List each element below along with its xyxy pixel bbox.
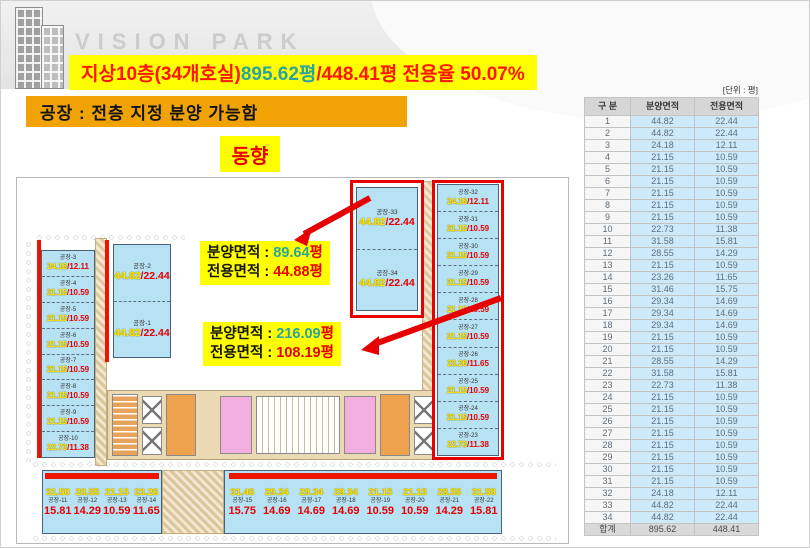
table-cell: 10.59 (695, 212, 759, 224)
unit-cell: 공장-3344.82/22.44 (357, 188, 417, 249)
restroom-right (344, 396, 376, 454)
unit-group-bottom-left: 31.58공장-1115.8128.55공장-1214.2921.15공장-13… (42, 470, 162, 534)
scallop-trim-left (24, 240, 33, 462)
elevator-icon (414, 427, 434, 455)
table-cell: 10.59 (695, 200, 759, 212)
table-cell: 10.59 (695, 476, 759, 488)
unit-cell: 공장-3121.15/10.59 (438, 211, 498, 238)
table-cell: 16 (585, 296, 631, 308)
table-cell: 12.11 (695, 140, 759, 152)
unit-cell: 공장-2421.15/10.59 (438, 401, 498, 428)
table-cell: 10.59 (695, 332, 759, 344)
table-cell: 44.82 (631, 500, 695, 512)
table-cell: 10.59 (695, 344, 759, 356)
table-cell: 21.15 (631, 428, 695, 440)
floor-plan: 공장-324.18/12.11공장-421.15/10.59공장-521.15/… (16, 177, 569, 544)
table-cell: 21.15 (631, 404, 695, 416)
table-row: 1629.3414.69 (585, 296, 759, 308)
table-cell: 14.29 (695, 356, 759, 368)
table-row: 1531.4615.75 (585, 284, 759, 296)
table-cell: 22.73 (631, 380, 695, 392)
table-row: 1423.2611.65 (585, 272, 759, 284)
table-row: 921.1510.59 (585, 212, 759, 224)
table-cell: 29.34 (631, 296, 695, 308)
table-header-cell: 구 분 (585, 98, 631, 116)
unit-cell: 공장-621.15/10.59 (42, 328, 94, 354)
table-cell: 31 (585, 476, 631, 488)
table-cell: 14.69 (695, 308, 759, 320)
table-cell: 2 (585, 128, 631, 140)
table-cell: 21.15 (631, 164, 695, 176)
unit-group-left-wing: 공장-324.18/12.11공장-421.15/10.59공장-521.15/… (41, 250, 95, 458)
table-cell: 10.59 (695, 260, 759, 272)
table-cell: 24 (585, 392, 631, 404)
table-cell: 22.73 (631, 224, 695, 236)
table-row: 244.8222.44 (585, 128, 759, 140)
table-row: 324.1812.11 (585, 140, 759, 152)
table-cell: 34 (585, 512, 631, 524)
table-cell: 21.15 (631, 152, 695, 164)
table-cell: 4 (585, 152, 631, 164)
unit-cell: 23.26공장-1411.65 (132, 471, 162, 533)
elevator-icon (142, 396, 162, 424)
table-cell: 10.59 (695, 404, 759, 416)
table-cell: 15.81 (695, 236, 759, 248)
table-cell: 10.59 (695, 176, 759, 188)
table-row: 1729.3414.69 (585, 308, 759, 320)
table-cell: 14.69 (695, 320, 759, 332)
table-cell: 21.15 (631, 452, 695, 464)
table-cell: 22.44 (695, 116, 759, 128)
table-row: 2621.1510.59 (585, 416, 759, 428)
table-cell: 10.59 (695, 428, 759, 440)
table-cell: 44.82 (631, 128, 695, 140)
table-cell: 14.29 (695, 248, 759, 260)
table-cell: 11.38 (695, 224, 759, 236)
unit-cell: 29.34공장-1814.69 (329, 471, 364, 533)
table-row: 421.1510.59 (585, 152, 759, 164)
table-cell: 44.82 (631, 512, 695, 524)
table-cell: 14.69 (695, 296, 759, 308)
table-cell: 24.18 (631, 140, 695, 152)
table-cell: 10.59 (695, 416, 759, 428)
unit-cell: 28.55공장-1214.29 (73, 471, 103, 533)
table-cell: 15.81 (695, 368, 759, 380)
table-cell: 10.59 (695, 188, 759, 200)
table-cell: 12 (585, 248, 631, 260)
callout-top-block: 분양면적 : 89.64평 전용면적 : 44.88평 (200, 241, 330, 285)
table-cell: 11 (585, 236, 631, 248)
unit-cell: 공장-2623.26/11.65 (438, 347, 498, 374)
title-banner: 지상10층(34개호실) 895.62평 /448.41평 전용율 50.07% (69, 55, 537, 90)
unit-cell: 31.46공장-1515.75 (225, 471, 260, 533)
table-cell: 19 (585, 332, 631, 344)
table-cell: 31.58 (631, 236, 695, 248)
table-row: 3344.8222.44 (585, 500, 759, 512)
table-row: 144.8222.44 (585, 116, 759, 128)
table-cell: 9 (585, 212, 631, 224)
table-row: 2128.5514.29 (585, 356, 759, 368)
unit-cell: 21.15공장-1910.59 (363, 471, 398, 533)
unit-cell: 공장-1022.73/11.38 (42, 431, 94, 457)
table-cell: 22.44 (695, 500, 759, 512)
unit-group-inner-block: 공장-244.82/22.44공장-144.82/22.44 (113, 244, 171, 358)
unit-cell: 공장-3021.15/10.59 (438, 238, 498, 265)
table-cell: 20 (585, 344, 631, 356)
table-cell: 10.59 (695, 440, 759, 452)
table-cell: 33 (585, 500, 631, 512)
table-cell: 22.44 (695, 512, 759, 524)
table-cell: 21.15 (631, 416, 695, 428)
unit-cell: 공장-324.18/12.11 (42, 251, 94, 276)
unit-cell: 공장-244.82/22.44 (114, 245, 170, 301)
logo-text: VISION PARK (75, 29, 304, 55)
table-cell: 30 (585, 464, 631, 476)
table-cell: 29 (585, 452, 631, 464)
table-cell: 21.15 (631, 476, 695, 488)
table-row: 2021.1510.59 (585, 344, 759, 356)
corridor-bottom-gap (162, 470, 224, 534)
table-cell: 895.62 (631, 524, 695, 536)
area-table-body: 144.8222.44244.8222.44324.1812.11421.151… (585, 116, 759, 536)
unit-cell: 공장-144.82/22.44 (114, 301, 170, 358)
scallop-trim-bottom (31, 534, 556, 543)
table-cell: 12.11 (695, 488, 759, 500)
unit-group-bottom-right: 31.46공장-1515.7529.34공장-1614.6929.34공장-17… (224, 470, 502, 534)
table-cell: 28.55 (631, 356, 695, 368)
unit-cell: 공장-2521.15/10.59 (438, 374, 498, 401)
table-cell: 17 (585, 308, 631, 320)
table-cell: 합계 (585, 524, 631, 536)
subtitle-banner: 공장 : 전층 지정 분양 가능함 (26, 96, 407, 127)
building-icon-small (41, 25, 64, 89)
table-cell: 28 (585, 440, 631, 452)
unit-cell: 공장-921.15/10.59 (42, 405, 94, 431)
table-cell: 10.59 (695, 452, 759, 464)
unit-cell: 공장-2821.15/10.59 (438, 292, 498, 319)
table-cell: 44.82 (631, 116, 695, 128)
table-cell: 21.15 (631, 440, 695, 452)
elevator-icon (142, 427, 162, 455)
unit-cell: 21.15공장-1310.59 (102, 471, 132, 533)
table-row: 2322.7311.38 (585, 380, 759, 392)
table-row: 2721.1510.59 (585, 428, 759, 440)
table-header-cell: 전용면적 (695, 98, 759, 116)
scallop-trim-mid (31, 460, 556, 469)
area-table: 구 분분양면적전용면적 144.8222.44244.8222.44324.18… (584, 97, 759, 536)
table-cell: 15 (585, 284, 631, 296)
unit-cell: 공장-721.15/10.59 (42, 354, 94, 380)
table-cell: 10 (585, 224, 631, 236)
unit-cell: 공장-2721.15/10.59 (438, 319, 498, 346)
table-row: 1228.5514.29 (585, 248, 759, 260)
table-row: 1829.3414.69 (585, 320, 759, 332)
table-cell: 6 (585, 176, 631, 188)
table-cell: 21.15 (631, 344, 695, 356)
building-icon (15, 7, 43, 89)
table-cell: 31.58 (631, 368, 695, 380)
highlight-wall-inner (105, 240, 109, 362)
unit-group-top-block: 공장-3344.82/22.44공장-3444.82/22.44 (356, 187, 418, 311)
unit-cell: 29.34공장-1714.69 (294, 471, 329, 533)
table-cell: 22 (585, 368, 631, 380)
table-cell: 7 (585, 188, 631, 200)
table-row: 2821.1510.59 (585, 440, 759, 452)
table-cell: 10.59 (695, 152, 759, 164)
table-row: 1022.7311.38 (585, 224, 759, 236)
unit-cell: 공장-3224.18/12.11 (438, 185, 498, 211)
table-unit-note: [단위 : 평] (691, 84, 758, 96)
table-cell: 31.46 (631, 284, 695, 296)
table-cell: 11.38 (695, 380, 759, 392)
table-cell: 1 (585, 116, 631, 128)
table-cell: 18 (585, 320, 631, 332)
unit-cell: 공장-3444.82/22.44 (357, 249, 417, 311)
table-cell: 21.15 (631, 464, 695, 476)
table-cell: 10.59 (695, 464, 759, 476)
title-net-area: /448.41평 전용율 50.07% (316, 59, 524, 86)
unit-cell: 21.15공장-2010.59 (398, 471, 433, 533)
highlight-wall-bottom-right (229, 473, 497, 479)
table-header-cell: 분양면적 (631, 98, 695, 116)
table-row: 2231.5815.81 (585, 368, 759, 380)
table-cell: 22.44 (695, 128, 759, 140)
table-cell: 21.15 (631, 200, 695, 212)
table-cell: 11.65 (695, 272, 759, 284)
table-row: 3444.8222.44 (585, 512, 759, 524)
table-row: 721.1510.59 (585, 188, 759, 200)
table-cell: 25 (585, 404, 631, 416)
building-core (107, 390, 485, 460)
restroom-left (220, 396, 252, 454)
table-cell: 23.26 (631, 272, 695, 284)
table-row: 2421.1510.59 (585, 392, 759, 404)
title-floor: 지상10층(34개호실) (81, 59, 241, 86)
table-row: 2921.1510.59 (585, 452, 759, 464)
table-row: 2521.1510.59 (585, 404, 759, 416)
table-cell: 21.15 (631, 212, 695, 224)
elevator-hall-right (380, 394, 410, 456)
table-cell: 21.15 (631, 188, 695, 200)
slide: VISION PARK 지상10층(34개호실) 895.62평 /448.41… (0, 0, 810, 548)
table-row: 1131.5815.81 (585, 236, 759, 248)
unit-cell: 공장-2322.73/11.38 (438, 428, 498, 455)
table-cell: 448.41 (695, 524, 759, 536)
elevator-hall-left (166, 394, 196, 456)
area-table-header-row: 구 분분양면적전용면적 (585, 98, 759, 116)
unit-group-right-wing: 공장-3224.18/12.11공장-3121.15/10.59공장-3021.… (437, 184, 499, 456)
restroom-stalls (256, 396, 340, 454)
table-row: 1921.1510.59 (585, 332, 759, 344)
table-row: 3021.1510.59 (585, 464, 759, 476)
unit-cell: 공장-821.15/10.59 (42, 379, 94, 405)
table-cell: 10.59 (695, 164, 759, 176)
table-cell: 15.75 (695, 284, 759, 296)
table-cell: 26 (585, 416, 631, 428)
table-cell: 21.15 (631, 392, 695, 404)
table-cell: 24.18 (631, 488, 695, 500)
scallop-trim-top (35, 233, 185, 242)
unit-cell: 공장-421.15/10.59 (42, 276, 94, 302)
table-row: 521.1510.59 (585, 164, 759, 176)
unit-cell: 28.55공장-2114.29 (432, 471, 467, 533)
table-cell: 21.15 (631, 332, 695, 344)
callout-right-wing: 분양면적 : 216.09평 전용면적 : 108.19평 (203, 322, 341, 366)
table-row: 3224.1812.11 (585, 488, 759, 500)
table-cell: 3 (585, 140, 631, 152)
table-row: 821.1510.59 (585, 200, 759, 212)
unit-cell: 31.58공장-1115.81 (43, 471, 73, 533)
table-cell: 23 (585, 380, 631, 392)
unit-cell: 공장-2921.15/10.59 (438, 265, 498, 292)
unit-cell: 공장-521.15/10.59 (42, 302, 94, 328)
table-cell: 28.55 (631, 248, 695, 260)
table-cell: 32 (585, 488, 631, 500)
table-cell: 5 (585, 164, 631, 176)
table-total-row: 합계895.62448.41 (585, 524, 759, 536)
table-cell: 29.34 (631, 308, 695, 320)
table-cell: 27 (585, 428, 631, 440)
table-cell: 21.15 (631, 260, 695, 272)
table-row: 1321.1510.59 (585, 260, 759, 272)
table-row: 3121.1510.59 (585, 476, 759, 488)
unit-cell: 29.34공장-1614.69 (260, 471, 295, 533)
table-cell: 10.59 (695, 392, 759, 404)
table-row: 621.1510.59 (585, 176, 759, 188)
table-cell: 21 (585, 356, 631, 368)
table-cell: 8 (585, 200, 631, 212)
table-cell: 21.15 (631, 176, 695, 188)
title-gross-area: 895.62평 (241, 59, 317, 86)
table-cell: 13 (585, 260, 631, 272)
elevator-icon (414, 396, 434, 424)
direction-label-east: 동향 (220, 136, 280, 172)
unit-cell: 31.58공장-2215.81 (467, 471, 502, 533)
table-cell: 29.34 (631, 320, 695, 332)
highlight-wall-bottom-left (45, 473, 159, 479)
table-cell: 14 (585, 272, 631, 284)
stairs-left (112, 394, 138, 456)
